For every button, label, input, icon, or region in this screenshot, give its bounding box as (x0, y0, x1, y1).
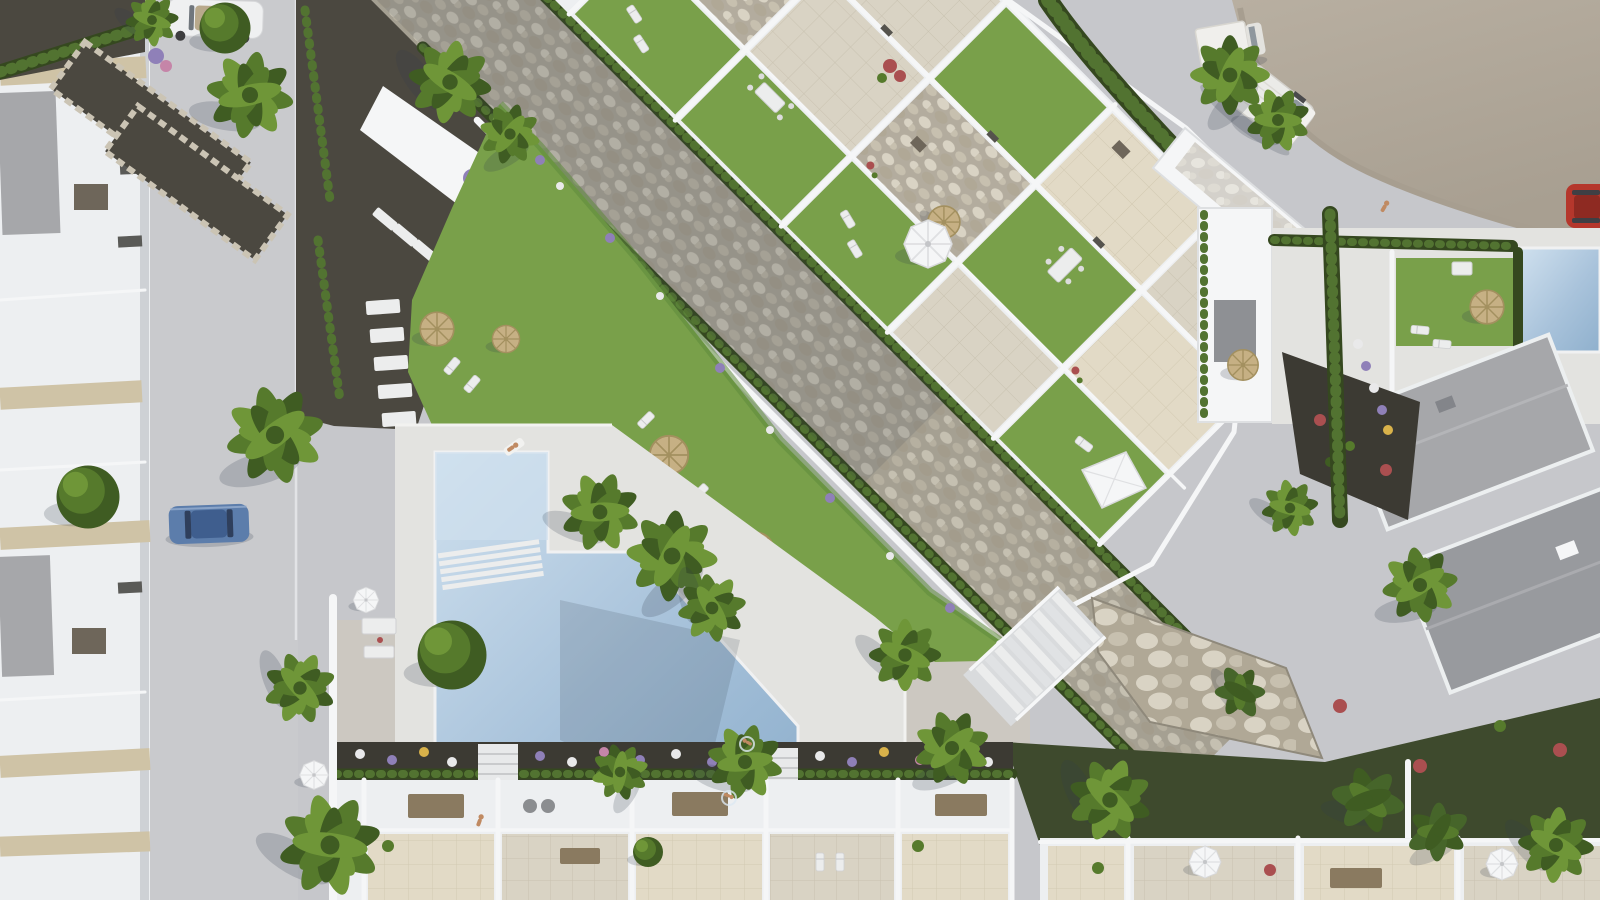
townhouse-terrace-floors (368, 834, 1008, 900)
lounger (1433, 339, 1452, 349)
table (1452, 262, 1472, 275)
pergola-table (1330, 868, 1382, 888)
lounger (1411, 325, 1430, 335)
private-pool (1520, 248, 1600, 352)
aerial-render-stage: Aerial top-down 3D architectural render … (0, 0, 1600, 900)
red-car (1566, 184, 1600, 228)
utility-block (1198, 208, 1272, 422)
blue-car (164, 503, 253, 548)
aerial-render (0, 0, 1600, 900)
